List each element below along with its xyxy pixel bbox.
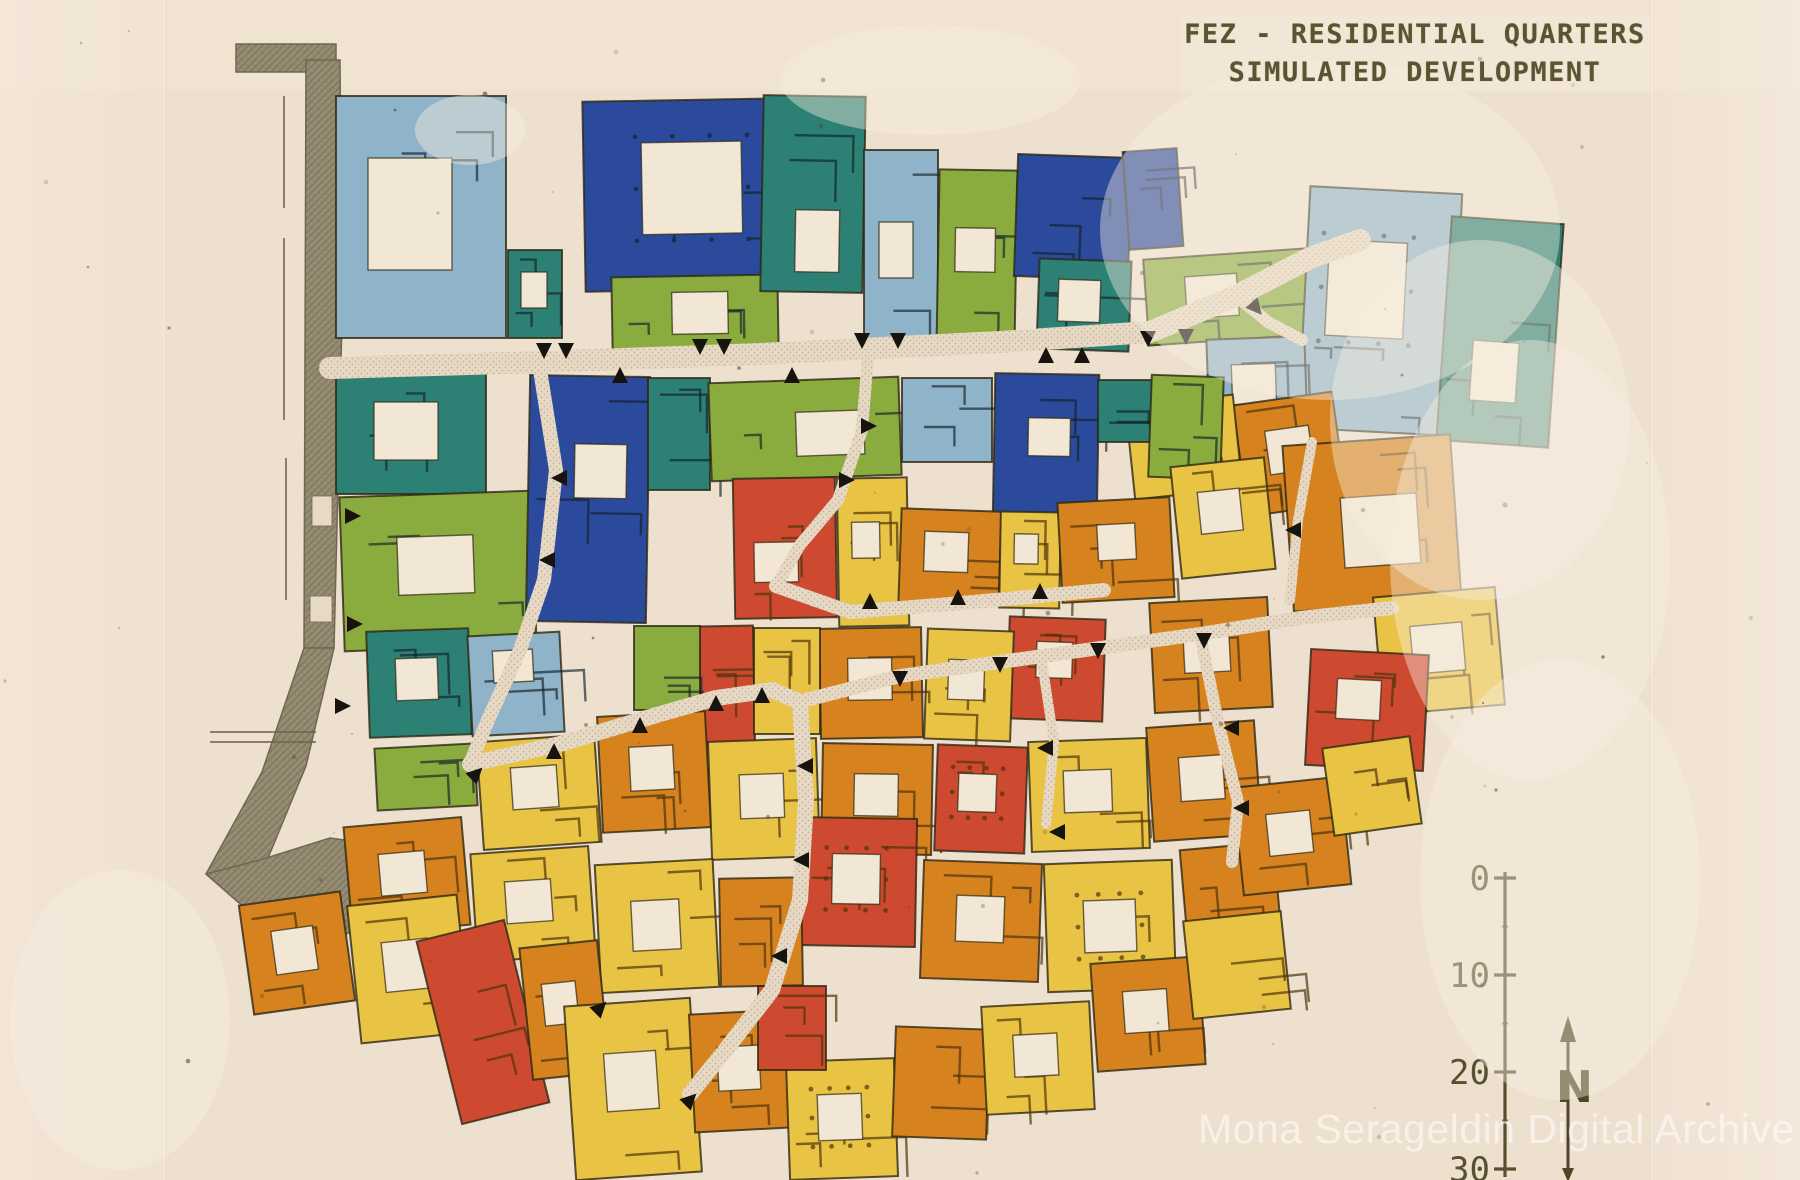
dust-speck — [810, 330, 815, 335]
courtyard — [368, 158, 452, 270]
dust-speck — [1601, 655, 1605, 659]
dust-speck — [606, 765, 608, 767]
courtyard — [795, 210, 840, 273]
map-block — [582, 98, 787, 291]
glare-patch — [10, 870, 230, 1170]
dust-speck — [429, 960, 431, 962]
courtyard — [1266, 810, 1314, 856]
courtyard — [603, 1050, 659, 1111]
dust-speck — [319, 878, 323, 882]
map-block — [239, 891, 355, 1014]
dust-speck — [128, 30, 130, 32]
map-block — [924, 629, 1014, 751]
courtyard — [672, 291, 729, 334]
dust-speck — [1219, 722, 1224, 727]
dust-speck — [44, 180, 49, 185]
dust-speck — [1272, 1043, 1275, 1046]
wall-gate — [312, 496, 332, 526]
dust-speck — [436, 211, 439, 214]
scale-label: 30 — [1449, 1150, 1490, 1180]
courtyard — [1197, 488, 1243, 534]
dust-speck — [333, 832, 335, 834]
courtyard — [631, 899, 682, 951]
dust-speck — [981, 904, 985, 908]
dust-speck — [118, 627, 121, 630]
dust-speck — [1140, 271, 1144, 275]
dust-speck — [186, 1059, 191, 1064]
dust-speck — [584, 723, 588, 727]
courtyard — [832, 854, 881, 905]
dust-speck — [1482, 702, 1484, 704]
courtyard — [521, 272, 547, 308]
courtyard — [1097, 523, 1137, 561]
courtyard — [879, 222, 913, 278]
map-title-line2: SIMULATED DEVELOPMENT — [1180, 54, 1650, 92]
courtyard — [574, 444, 627, 499]
courtyard — [395, 657, 438, 700]
dust-speck — [552, 191, 554, 193]
dust-speck — [1523, 341, 1525, 343]
courtyard — [955, 228, 996, 273]
dust-speck — [1273, 598, 1275, 600]
dust-speck — [483, 92, 488, 97]
courtyard — [1057, 279, 1100, 322]
map-block — [754, 628, 820, 734]
dust-speck — [351, 733, 353, 735]
dust-speck — [1401, 374, 1404, 377]
courtyard — [817, 1093, 863, 1141]
map-block — [339, 491, 536, 652]
map-block — [797, 817, 927, 947]
courtyard — [1028, 418, 1071, 457]
dust-speck — [1646, 462, 1648, 464]
map-block — [336, 370, 486, 494]
glare-patch — [1420, 660, 1700, 1100]
dust-speck — [1262, 1005, 1267, 1010]
dust-speck — [1226, 623, 1230, 627]
courtyard — [629, 745, 675, 791]
dust-speck — [592, 637, 595, 640]
dust-speck — [1278, 791, 1281, 794]
dust-speck — [292, 755, 297, 760]
courtyard — [958, 773, 997, 812]
block-body — [1183, 911, 1291, 1019]
dust-speck — [874, 492, 876, 494]
dust-speck — [766, 815, 770, 819]
map-block — [786, 1058, 907, 1180]
courtyard — [1014, 534, 1039, 564]
map-block — [1322, 736, 1421, 835]
courtyard — [1063, 769, 1112, 813]
courtyard — [397, 535, 475, 596]
dust-speck — [80, 42, 83, 45]
dust-speck — [3, 679, 7, 683]
dust-speck — [708, 471, 710, 473]
courtyard — [739, 773, 785, 819]
dust-speck — [1494, 788, 1497, 791]
dust-speck — [684, 810, 687, 813]
block-body — [892, 1026, 990, 1139]
courtyard — [923, 531, 968, 573]
dust-speck — [614, 50, 619, 55]
courtyard — [1178, 755, 1225, 802]
dust-speck — [638, 742, 641, 745]
dust-speck — [1046, 611, 1051, 616]
dust-speck — [1034, 500, 1036, 502]
map-block — [708, 376, 921, 481]
dust-speck — [87, 266, 90, 269]
watermark: Mona Serageldin Digital Archive — [1198, 1106, 1798, 1153]
slide-scan: 0102030N FEZ - RESIDENTIAL QUARTERS SIMU… — [0, 0, 1800, 1180]
courtyard — [374, 402, 438, 460]
courtyard — [271, 926, 319, 975]
map-title-line1: FEZ - RESIDENTIAL QUARTERS — [1180, 16, 1650, 54]
courtyard — [1083, 899, 1137, 953]
block-body — [699, 626, 755, 745]
map-block — [934, 744, 1028, 853]
wall-gate — [310, 596, 332, 622]
courtyard — [1013, 1033, 1059, 1077]
block-body — [902, 378, 992, 462]
map-block — [374, 743, 477, 810]
dust-speck — [821, 78, 826, 83]
courtyard — [851, 522, 880, 558]
dust-speck — [1384, 308, 1386, 310]
dust-speck — [941, 542, 944, 545]
map-block — [1006, 616, 1106, 721]
dust-speck — [167, 326, 170, 329]
dust-speck — [1749, 616, 1753, 620]
dust-speck — [975, 1171, 978, 1174]
dust-speck — [1043, 830, 1048, 835]
dust-speck — [1450, 715, 1454, 719]
dust-speck — [1235, 153, 1237, 155]
dust-speck — [1354, 812, 1357, 815]
map-block — [981, 1001, 1095, 1126]
dust-speck — [394, 109, 397, 112]
courtyard — [504, 879, 553, 924]
dust-speck — [1484, 785, 1487, 788]
map-title: FEZ - RESIDENTIAL QUARTERS SIMULATED DEV… — [1180, 16, 1650, 92]
map-block — [366, 628, 472, 737]
dust-speck — [1480, 983, 1485, 988]
map-block — [508, 250, 562, 338]
courtyard — [378, 850, 427, 896]
dust-speck — [1361, 508, 1366, 513]
dust-speck — [1157, 1022, 1160, 1025]
courtyard — [510, 765, 559, 810]
dust-speck — [1580, 145, 1584, 149]
dust-speck — [1503, 503, 1508, 508]
map-block — [902, 378, 998, 462]
courtyard — [955, 895, 1005, 943]
map-block — [920, 860, 1045, 982]
dust-speck — [967, 527, 972, 532]
dust-speck — [737, 366, 741, 370]
courtyard — [641, 141, 743, 235]
dust-speck — [1052, 702, 1054, 704]
courtyard — [1122, 989, 1169, 1034]
courtyard — [1336, 678, 1382, 720]
dust-speck — [819, 124, 823, 128]
fez-map-drawing: 0102030N — [0, 0, 1800, 1180]
dust-speck — [908, 906, 911, 909]
glare-patch — [415, 95, 525, 165]
dust-speck — [260, 994, 264, 998]
courtyard — [854, 774, 899, 817]
